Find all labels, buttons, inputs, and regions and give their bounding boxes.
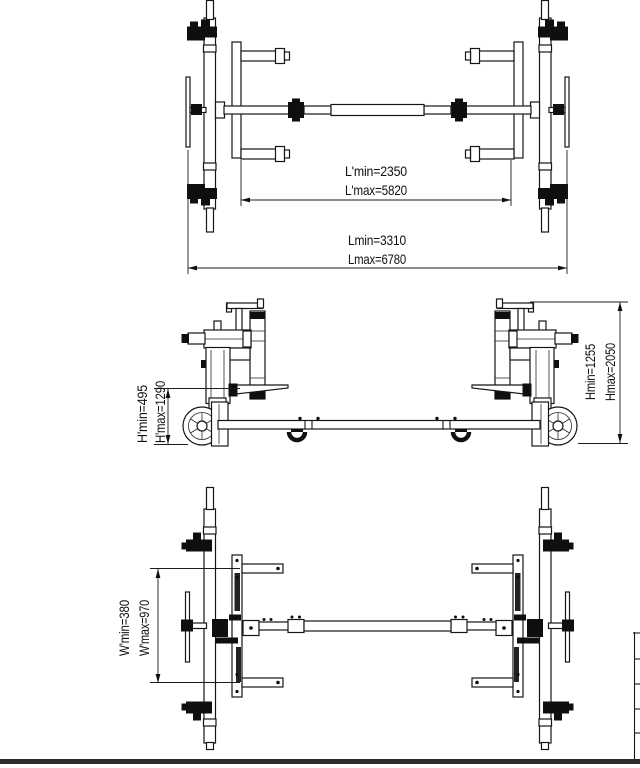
- rail-collar: [204, 45, 217, 52]
- rail-end-extension: [207, 488, 214, 510]
- rail-collar: [204, 527, 217, 534]
- dim-label-l-prime-min: L'min=2350: [345, 163, 407, 179]
- drawing-canvas: L'min=2350 L'max=5820 Lmin=3310 Lmax=678…: [0, 0, 640, 768]
- dim-label-l-max: Lmax=6780: [348, 251, 406, 267]
- technical-drawing-svg: L'min=2350 L'max=5820 Lmin=3310 Lmax=678…: [0, 0, 640, 768]
- dim-inner-length: L'min=2350 L'max=5820: [241, 160, 511, 206]
- arm-carrier-plate: [232, 42, 241, 158]
- beam-connector: [288, 616, 304, 633]
- dim-label-h-max: Hmax=2050: [602, 343, 618, 401]
- dim-label-l-min: Lmin=3310: [348, 232, 406, 248]
- drawing-border-bottom: [0, 759, 640, 764]
- bottom-plan-right-assembly: [451, 488, 574, 750]
- lead-screw-shaft: [236, 647, 241, 682]
- beam-inner-tube: [304, 621, 451, 631]
- bottom-plan-left-assembly: [181, 488, 304, 750]
- rail-end-extension: [207, 1, 214, 20]
- support-arm: [241, 147, 290, 162]
- rail-end-extension: [207, 208, 214, 232]
- view-top-plan: L'min=2350 L'max=5820 Lmin=3310 Lmax=678…: [186, 1, 569, 275]
- base-beam: [218, 417, 540, 440]
- t-handle: [186, 77, 206, 147]
- rail-collar: [204, 163, 217, 170]
- beam-clamp-block: [288, 99, 304, 122]
- view-side-elevation: H'min=495 H'max=1290 Hmin=1255 Hmax=2050: [134, 299, 628, 446]
- caster-wheel: [289, 429, 305, 440]
- t-handle: [181, 592, 207, 662]
- beam-junction: [216, 102, 225, 118]
- caster-wheel: [453, 429, 469, 440]
- top-plan-left-assembly: [186, 1, 331, 233]
- beam-inner-tube: [331, 105, 424, 116]
- rail-end-extension: [207, 743, 214, 750]
- dim-label-w-prime-max: W'max=970: [136, 600, 152, 656]
- dim-label-h-min: Hmin=1255: [582, 344, 598, 400]
- view-bottom-plan: W'min=380 W'max=970: [116, 488, 574, 750]
- dim-label-h-prime-max: H'max=1290: [152, 381, 168, 443]
- beam-outer-tube: [259, 622, 289, 630]
- dim-label-l-prime-max: L'max=5820: [345, 182, 407, 198]
- top-plan-right-assembly: [424, 1, 569, 233]
- dim-label-w-prime-min: W'min=380: [116, 600, 132, 656]
- support-arm: [241, 49, 290, 64]
- beam-mid-segment: [304, 106, 331, 114]
- rail-collar: [204, 719, 217, 726]
- title-block: [633, 632, 640, 761]
- dim-label-h-prime-min: H'min=495: [134, 385, 150, 443]
- beam-outer-tube: [224, 106, 290, 114]
